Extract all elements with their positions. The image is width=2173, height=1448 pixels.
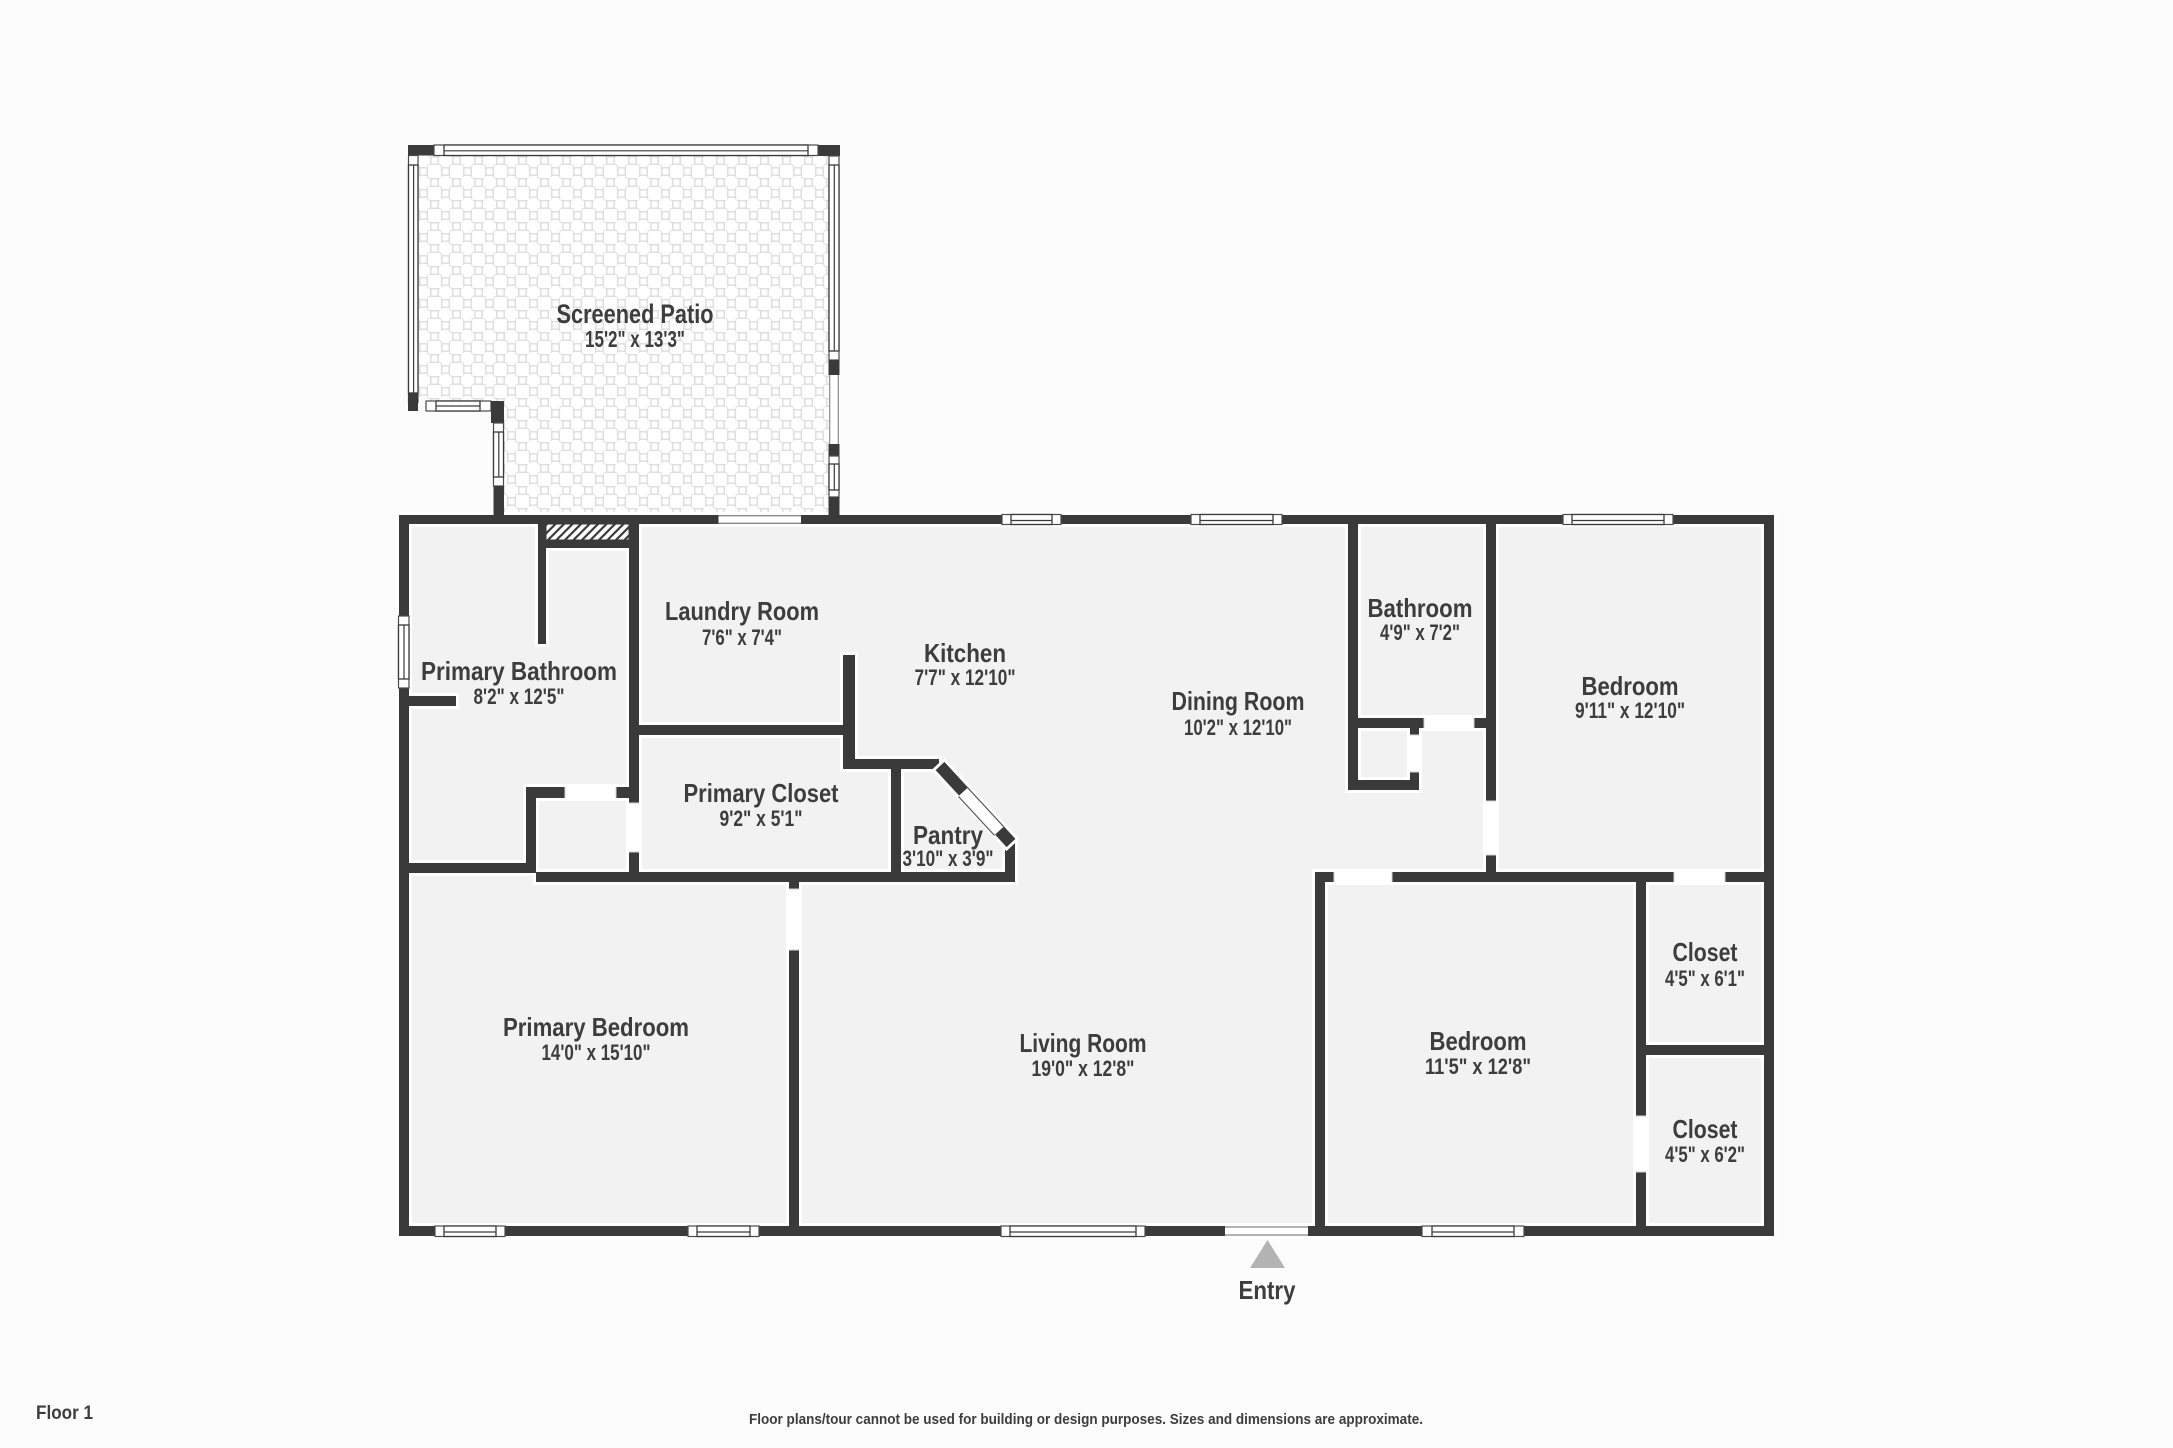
svg-text:14'0" x 15'10": 14'0" x 15'10" [542, 1040, 651, 1065]
svg-text:Closet: Closet [1673, 937, 1738, 967]
svg-text:10'2" x 12'10": 10'2" x 12'10" [1184, 715, 1292, 740]
svg-text:9'2" x 5'1": 9'2" x 5'1" [720, 806, 803, 831]
svg-text:Primary Bedroom: Primary Bedroom [503, 1012, 689, 1042]
svg-text:4'9" x 7'2": 4'9" x 7'2" [1380, 620, 1460, 645]
svg-text:11'5" x 12'8": 11'5" x 12'8" [1425, 1054, 1531, 1079]
svg-text:Primary Closet: Primary Closet [684, 778, 839, 808]
svg-text:15'2" x 13'3": 15'2" x 13'3" [585, 326, 685, 352]
svg-text:3'10" x 3'9": 3'10" x 3'9" [903, 846, 994, 871]
svg-text:19'0" x 12'8": 19'0" x 12'8" [1032, 1056, 1135, 1081]
svg-text:7'6" x 7'4": 7'6" x 7'4" [702, 625, 782, 650]
svg-text:Primary Bathroom: Primary Bathroom [421, 656, 617, 686]
svg-text:4'5" x 6'2": 4'5" x 6'2" [1665, 1142, 1745, 1167]
svg-text:Closet: Closet [1673, 1114, 1738, 1144]
svg-text:Dining Room: Dining Room [1172, 686, 1305, 716]
svg-text:Living Room: Living Room [1020, 1028, 1147, 1058]
svg-text:9'11" x 12'10": 9'11" x 12'10" [1575, 698, 1685, 723]
svg-text:Laundry Room: Laundry Room [665, 596, 819, 626]
svg-text:Screened Patio: Screened Patio [557, 299, 714, 329]
svg-text:Bedroom: Bedroom [1582, 671, 1679, 701]
svg-text:Floor plans/tour cannot be use: Floor plans/tour cannot be used for buil… [749, 1411, 1423, 1428]
svg-text:Bathroom: Bathroom [1368, 593, 1473, 623]
svg-text:Entry: Entry [1239, 1275, 1296, 1305]
svg-text:8'2" x 12'5": 8'2" x 12'5" [474, 684, 565, 709]
svg-text:Floor 1: Floor 1 [36, 1403, 93, 1424]
svg-text:Bedroom: Bedroom [1430, 1026, 1527, 1056]
svg-text:7'7" x 12'10": 7'7" x 12'10" [915, 665, 1016, 690]
svg-text:4'5" x 6'1": 4'5" x 6'1" [1665, 966, 1745, 991]
svg-text:Kitchen: Kitchen [924, 638, 1006, 668]
